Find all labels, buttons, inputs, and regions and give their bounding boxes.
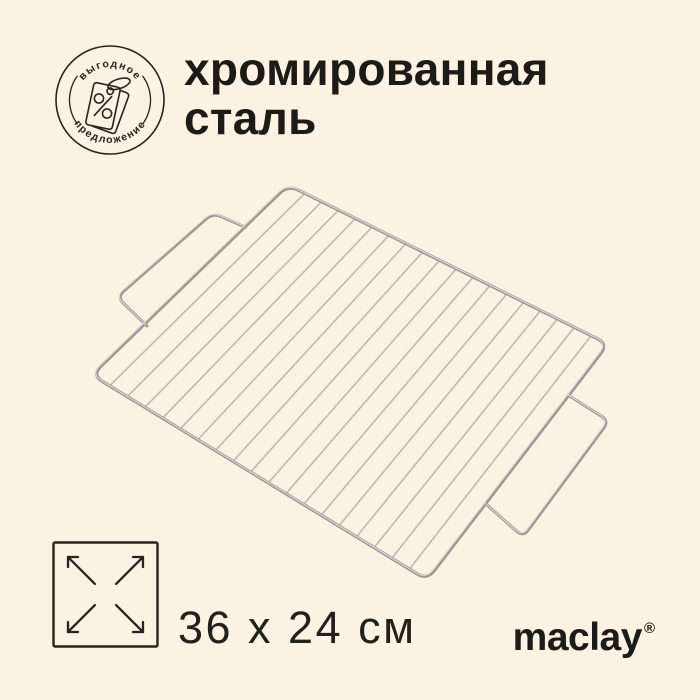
product-title-line2: сталь (184, 94, 549, 143)
badge-top-text: выгодное (76, 58, 143, 83)
registered-trademark-symbol: ® (644, 620, 655, 637)
percent-tag-icon (85, 69, 134, 135)
brand-logo: maclay® (513, 616, 653, 660)
dimensions-label: 36 x 24 см (178, 602, 417, 654)
product-title: хромированная сталь (184, 45, 549, 143)
dimensions-icon-arrows (68, 557, 143, 632)
brand-name: maclay (513, 616, 642, 659)
tag-string-loop-icon (107, 76, 132, 92)
product-card: выгодное предложение хромированная сталь (0, 0, 700, 700)
offer-badge: выгодное предложение (40, 30, 180, 170)
expand-arrows-icon (52, 541, 159, 648)
product-title-line1: хромированная (184, 45, 549, 94)
